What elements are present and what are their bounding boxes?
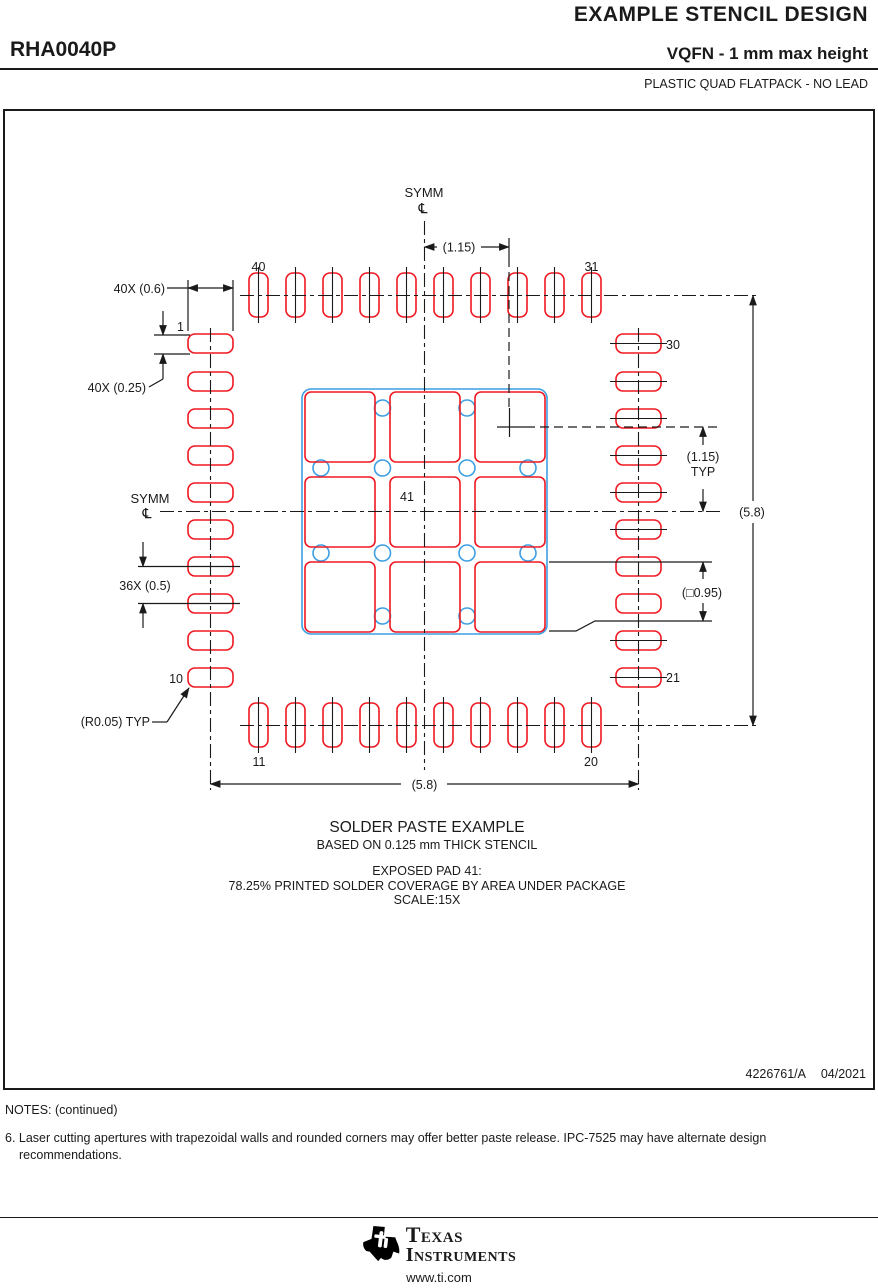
notes-heading: NOTES: (continued): [5, 1103, 118, 1117]
dim-corner-radius-leader: [152, 688, 189, 722]
centerline-symbol-left: ℄: [142, 505, 152, 521]
dim-pitch-right-typ: TYP: [691, 465, 715, 479]
pin-label-30: 30: [666, 338, 680, 352]
caption-exposed-pad: EXPOSED PAD 41:: [372, 864, 482, 878]
stencil-drawing: SYMM ℄ SYMM ℄ (1.15) (1.15) TYP (5.8) (□…: [0, 0, 878, 1100]
pin-label-31: 31: [585, 260, 599, 274]
dim-span-bottom-label: (5.8): [412, 778, 438, 792]
caption-scale: SCALE:15X: [394, 893, 461, 907]
brand-instruments: Instruments: [406, 1245, 517, 1265]
pin-label-1: 1: [177, 320, 184, 334]
footer-rule: [0, 1217, 878, 1218]
brand-texas: Texas: [406, 1224, 517, 1246]
document-id: 4226761/A: [746, 1067, 807, 1081]
pin-label-10: 10: [169, 672, 183, 686]
ti-website: www.ti.com: [0, 1270, 878, 1285]
centerline-symbol-top: ℄: [418, 200, 428, 216]
ti-wordmark: Texas Instruments: [406, 1224, 517, 1265]
dim-pitch-right: [526, 427, 718, 512]
title-block: 4226761/A 04/2021: [746, 1067, 867, 1081]
dim-corner-radius-label: (R0.05) TYP: [81, 715, 150, 729]
symm-left-label: SYMM: [131, 491, 170, 506]
note-6: 6. Laser cutting apertures with trapezoi…: [5, 1130, 864, 1164]
caption-coverage: 78.25% PRINTED SOLDER COVERAGE BY AREA U…: [229, 879, 626, 893]
pin-label-41: 41: [400, 490, 414, 504]
drawing-frame: [4, 110, 874, 1089]
ti-logo: Texas Instruments: [0, 1224, 878, 1266]
dim-pad-pitch-label: 36X (0.5): [119, 579, 170, 593]
caption-stencil: BASED ON 0.125 mm THICK STENCIL: [317, 838, 538, 852]
dim-pad-width-label: 40X (0.25): [88, 381, 146, 395]
dim-pitch-top-label: (1.15): [443, 241, 476, 255]
dim-span-right-label: (5.8): [739, 506, 765, 520]
pin-label-21: 21: [666, 671, 680, 685]
drawing-labels: SYMM ℄ SYMM ℄ (1.15) (1.15) TYP (5.8) (□…: [81, 185, 765, 792]
caption-block: SOLDER PASTE EXAMPLE BASED ON 0.125 mm T…: [229, 819, 626, 907]
pin-label-11: 11: [253, 755, 266, 769]
dim-aperture-square-label: (□0.95): [682, 586, 722, 600]
dim-pad-length-label: 40X (0.6): [114, 282, 165, 296]
pin-label-40: 40: [252, 260, 266, 274]
caption-title: SOLDER PASTE EXAMPLE: [329, 819, 524, 836]
datasheet-page: { "header": { "title": "EXAMPLE STENCIL …: [0, 0, 878, 1288]
dim-pitch-right-label: (1.15): [687, 450, 720, 464]
texas-state-icon: [362, 1224, 400, 1266]
pin-label-20: 20: [584, 755, 598, 769]
symm-top-label: SYMM: [405, 185, 444, 200]
document-date: 04/2021: [821, 1067, 866, 1081]
